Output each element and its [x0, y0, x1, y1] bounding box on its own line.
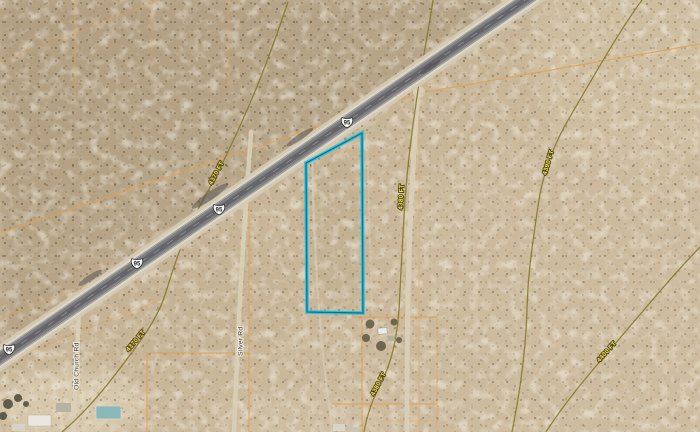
- route-shield-label: 95: [216, 208, 223, 214]
- small-shed: [12, 424, 25, 431]
- elevation-label-4380-n: 4380 FT: [397, 184, 405, 210]
- gray-building: [56, 403, 71, 412]
- road-label-old-church: Old Church Rd: [74, 342, 81, 390]
- teal-roof-building: [96, 406, 121, 419]
- white-house: [378, 328, 387, 335]
- route-shield-label: 95: [134, 262, 141, 268]
- route-shield-label: 95: [344, 121, 351, 127]
- route-shield-label: 95: [6, 348, 13, 354]
- map-canvas[interactable]: 95 95 95 95 4370 FT 4380 FT 4390 FT 4400…: [0, 0, 700, 432]
- satellite-map[interactable]: 95 95 95 95 4370 FT 4380 FT 4390 FT 4400…: [0, 0, 700, 432]
- road-label-silver: Silver Rd: [238, 327, 245, 356]
- white-building: [28, 415, 51, 426]
- gray-outbuilding: [388, 336, 395, 341]
